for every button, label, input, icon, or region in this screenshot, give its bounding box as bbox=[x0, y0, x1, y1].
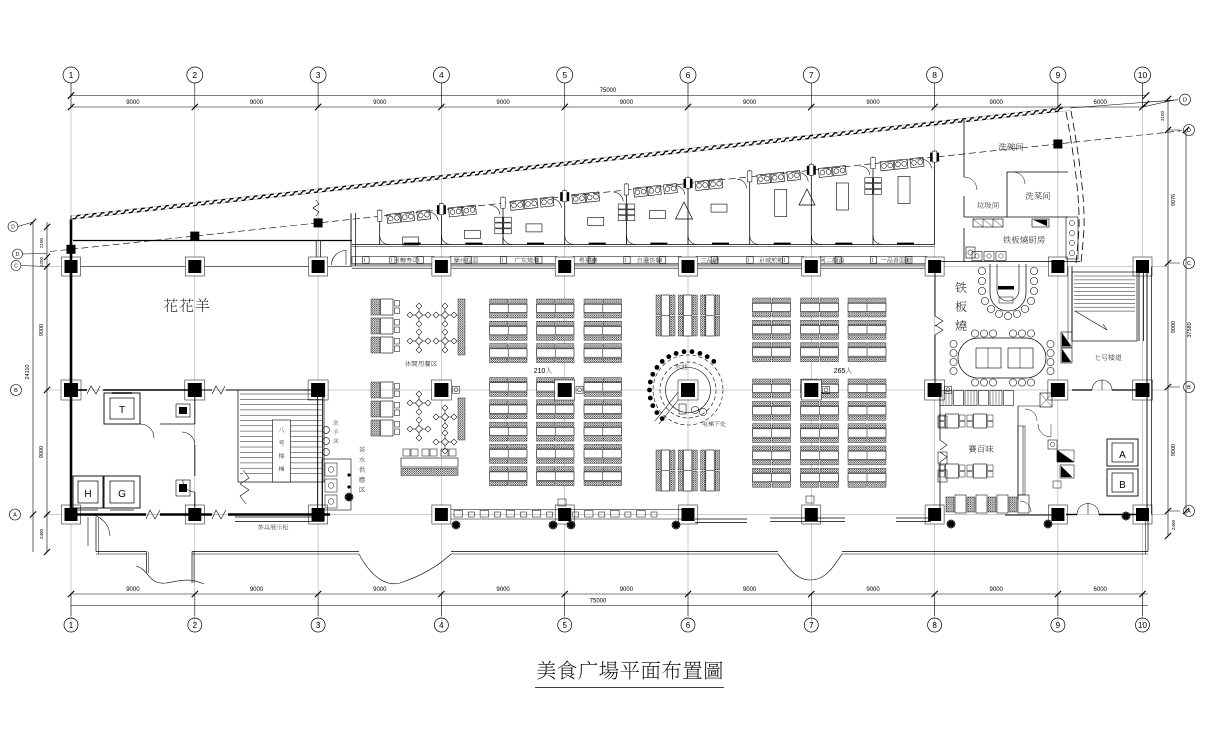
svg-text:9000: 9000 bbox=[126, 587, 140, 593]
svg-text:2400: 2400 bbox=[39, 528, 44, 539]
svg-text:B: B bbox=[14, 388, 18, 394]
svg-text:5: 5 bbox=[841, 368, 845, 375]
svg-text:10: 10 bbox=[1138, 70, 1148, 80]
svg-text:1200: 1200 bbox=[39, 256, 44, 267]
svg-text:9000: 9000 bbox=[990, 587, 1004, 593]
svg-text:7: 7 bbox=[809, 621, 814, 630]
svg-text:0: 0 bbox=[541, 368, 545, 375]
svg-text:9000: 9000 bbox=[1171, 444, 1177, 456]
svg-text:9000: 9000 bbox=[126, 100, 140, 106]
svg-text:6: 6 bbox=[686, 70, 691, 80]
svg-text:7: 7 bbox=[809, 70, 814, 80]
svg-text:D: D bbox=[16, 252, 20, 258]
svg-text:9000: 9000 bbox=[39, 446, 45, 458]
svg-text:2: 2 bbox=[193, 621, 198, 630]
svg-text:8: 8 bbox=[932, 621, 937, 630]
svg-text:5: 5 bbox=[562, 621, 567, 630]
svg-text:24110: 24110 bbox=[25, 365, 31, 380]
svg-text:D: D bbox=[1183, 98, 1187, 104]
svg-text:D: D bbox=[1187, 128, 1191, 134]
svg-text:9000: 9000 bbox=[743, 100, 757, 106]
svg-text:9000: 9000 bbox=[620, 587, 634, 593]
svg-text:D: D bbox=[11, 225, 15, 231]
svg-text:9000: 9000 bbox=[866, 100, 880, 106]
svg-text:A: A bbox=[13, 513, 17, 519]
svg-text:37580: 37580 bbox=[1187, 322, 1193, 337]
svg-text:4: 4 bbox=[439, 621, 444, 630]
svg-text:B: B bbox=[1187, 385, 1191, 391]
svg-text:3: 3 bbox=[316, 70, 321, 80]
svg-text:10: 10 bbox=[1138, 621, 1147, 630]
svg-text:9000: 9000 bbox=[250, 587, 264, 593]
svg-text:2400: 2400 bbox=[1171, 519, 1176, 530]
svg-text:9000: 9000 bbox=[866, 587, 880, 593]
svg-text:C: C bbox=[14, 264, 18, 270]
svg-text:9000: 9000 bbox=[250, 100, 264, 106]
svg-text:5: 5 bbox=[562, 70, 567, 80]
svg-text:A: A bbox=[1119, 450, 1126, 461]
svg-text:H: H bbox=[84, 489, 91, 500]
svg-text:9000: 9000 bbox=[373, 587, 387, 593]
svg-text:9000: 9000 bbox=[743, 587, 757, 593]
svg-text:9000: 9000 bbox=[496, 100, 510, 106]
svg-text:9000: 9000 bbox=[1171, 321, 1177, 333]
svg-text:6000: 6000 bbox=[1094, 587, 1108, 593]
svg-text:9000: 9000 bbox=[990, 100, 1004, 106]
svg-text:6: 6 bbox=[686, 621, 691, 630]
svg-text:8: 8 bbox=[932, 70, 937, 80]
svg-text:1: 1 bbox=[69, 621, 74, 630]
svg-text:1: 1 bbox=[69, 70, 74, 80]
svg-text:9000: 9000 bbox=[373, 100, 387, 106]
svg-text:2: 2 bbox=[192, 70, 197, 80]
svg-text:9000: 9000 bbox=[39, 324, 45, 336]
svg-text:9000: 9000 bbox=[620, 100, 634, 106]
svg-text:3: 3 bbox=[316, 621, 321, 630]
svg-text:B: B bbox=[1119, 480, 1126, 491]
svg-text:3103: 3103 bbox=[1160, 110, 1165, 121]
svg-text:9076: 9076 bbox=[1171, 194, 1177, 206]
svg-text:G: G bbox=[118, 489, 126, 500]
svg-text:9: 9 bbox=[1056, 70, 1061, 80]
svg-text:4: 4 bbox=[439, 70, 444, 80]
svg-text:9: 9 bbox=[1056, 621, 1061, 630]
svg-text:9000: 9000 bbox=[496, 587, 510, 593]
svg-text:A: A bbox=[1187, 509, 1191, 515]
svg-text:C: C bbox=[1187, 261, 1191, 267]
svg-text:75000: 75000 bbox=[590, 599, 607, 605]
svg-text:T: T bbox=[119, 405, 125, 416]
svg-text:2100: 2100 bbox=[39, 237, 44, 248]
svg-text:75000: 75000 bbox=[600, 88, 617, 94]
